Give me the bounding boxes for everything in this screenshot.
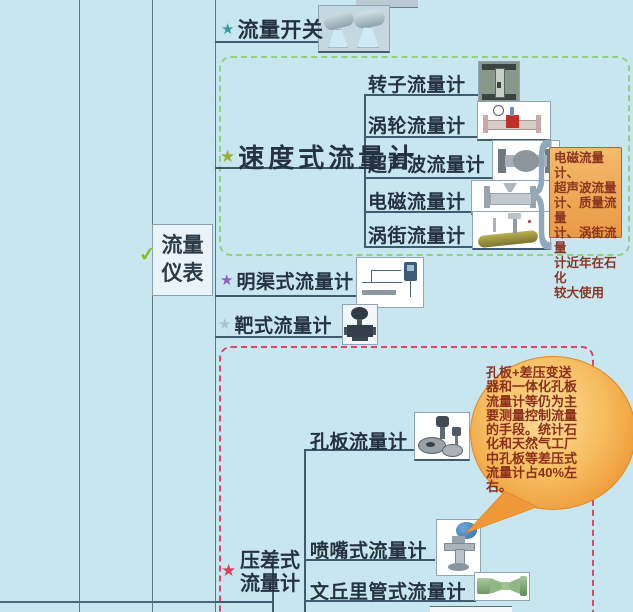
callout-text: 孔板+差压变送 器和一体化孔板 流量计等仍为主 要测量控制流量 的手段。统计石 … xyxy=(486,366,596,495)
tree-trunk-line xyxy=(215,0,216,612)
node-label: 孔板流量计 xyxy=(310,427,408,454)
node-label: 明渠式流量计 xyxy=(236,267,353,294)
star-icon-red: ★ xyxy=(221,562,236,579)
node-ultrasonic-flowmeter[interactable]: 超声波流量计 xyxy=(368,150,485,177)
open-channel-underline xyxy=(215,295,358,297)
node-open-channel-flowmeter[interactable]: ★ 明渠式流量计 xyxy=(220,267,353,294)
node-label: 喷嘴式流量计 xyxy=(310,536,427,563)
node-label: 流量开关 xyxy=(237,14,323,44)
diff-pressure-spine xyxy=(304,449,306,612)
venturi-flowmeter-image[interactable] xyxy=(474,572,530,601)
star-icon-purple: ★ xyxy=(220,273,233,288)
star-wrap: ★ xyxy=(221,562,239,579)
node-flow-switch[interactable]: ★ 流量开关 xyxy=(221,14,323,44)
mindmap-canvas: 流量 仪表 ✔ ★ 流量开关 ★ 速度式流量计 转子流量计 涡轮流量计 xyxy=(0,0,633,612)
node-vortex-flowmeter[interactable]: 涡街流量计 xyxy=(368,221,466,248)
child-underline xyxy=(364,177,492,179)
node-turbine-flowmeter[interactable]: 涡轮流量计 xyxy=(368,111,466,138)
root-node-flow-instruments[interactable]: 流量 仪表 xyxy=(152,224,213,296)
check-icon: ✔ xyxy=(137,241,157,268)
node-label: 电磁流量计 xyxy=(368,187,466,214)
node-label: 靶式流量计 xyxy=(234,311,332,338)
node-label: 超声波流量计 xyxy=(368,150,485,177)
star-icon-olive: ★ xyxy=(220,148,235,165)
node-label: 文丘里管式流量计 xyxy=(310,577,466,604)
node-electromagnetic-flowmeter[interactable]: 电磁流量计 xyxy=(368,187,466,214)
node-target-flowmeter[interactable]: ★ 靶式流量计 xyxy=(218,311,332,338)
node-venturi-flowmeter[interactable]: 文丘里管式流量计 xyxy=(310,577,466,604)
velocity-note-box[interactable]: 电磁流量计、 超声波流量 计、质量流量 计、涡街流量 计近年在石化 较大使用 xyxy=(549,147,622,238)
tree-line-level1 xyxy=(79,0,80,612)
open-channel-image[interactable] xyxy=(356,257,424,308)
rotor-flowmeter-image[interactable] xyxy=(478,61,520,104)
target-flowmeter-image[interactable] xyxy=(342,304,378,345)
flow-switch-image[interactable] xyxy=(318,5,390,53)
node-diff-pressure-flowmeter[interactable]: 压差式 流量计 xyxy=(240,550,300,596)
node-label: 转子流量计 xyxy=(368,70,466,97)
star-icon-gray: ★ xyxy=(218,317,231,332)
orifice-flowmeter-image[interactable] xyxy=(414,412,470,461)
node-label: 涡街流量计 xyxy=(368,221,466,248)
node-nozzle-flowmeter[interactable]: 喷嘴式流量计 xyxy=(310,536,427,563)
star-icon-teal: ★ xyxy=(221,22,234,37)
tree-line-level2 xyxy=(152,0,153,612)
cropped-node-image-bottom xyxy=(430,606,512,612)
node-orifice-flowmeter[interactable]: 孔板流量计 xyxy=(310,427,408,454)
diff-pressure-underline xyxy=(215,601,272,603)
node-label: 涡轮流量计 xyxy=(368,111,466,138)
node-rotor-flowmeter[interactable]: 转子流量计 xyxy=(368,70,466,97)
tree-line-bottom xyxy=(0,601,230,603)
